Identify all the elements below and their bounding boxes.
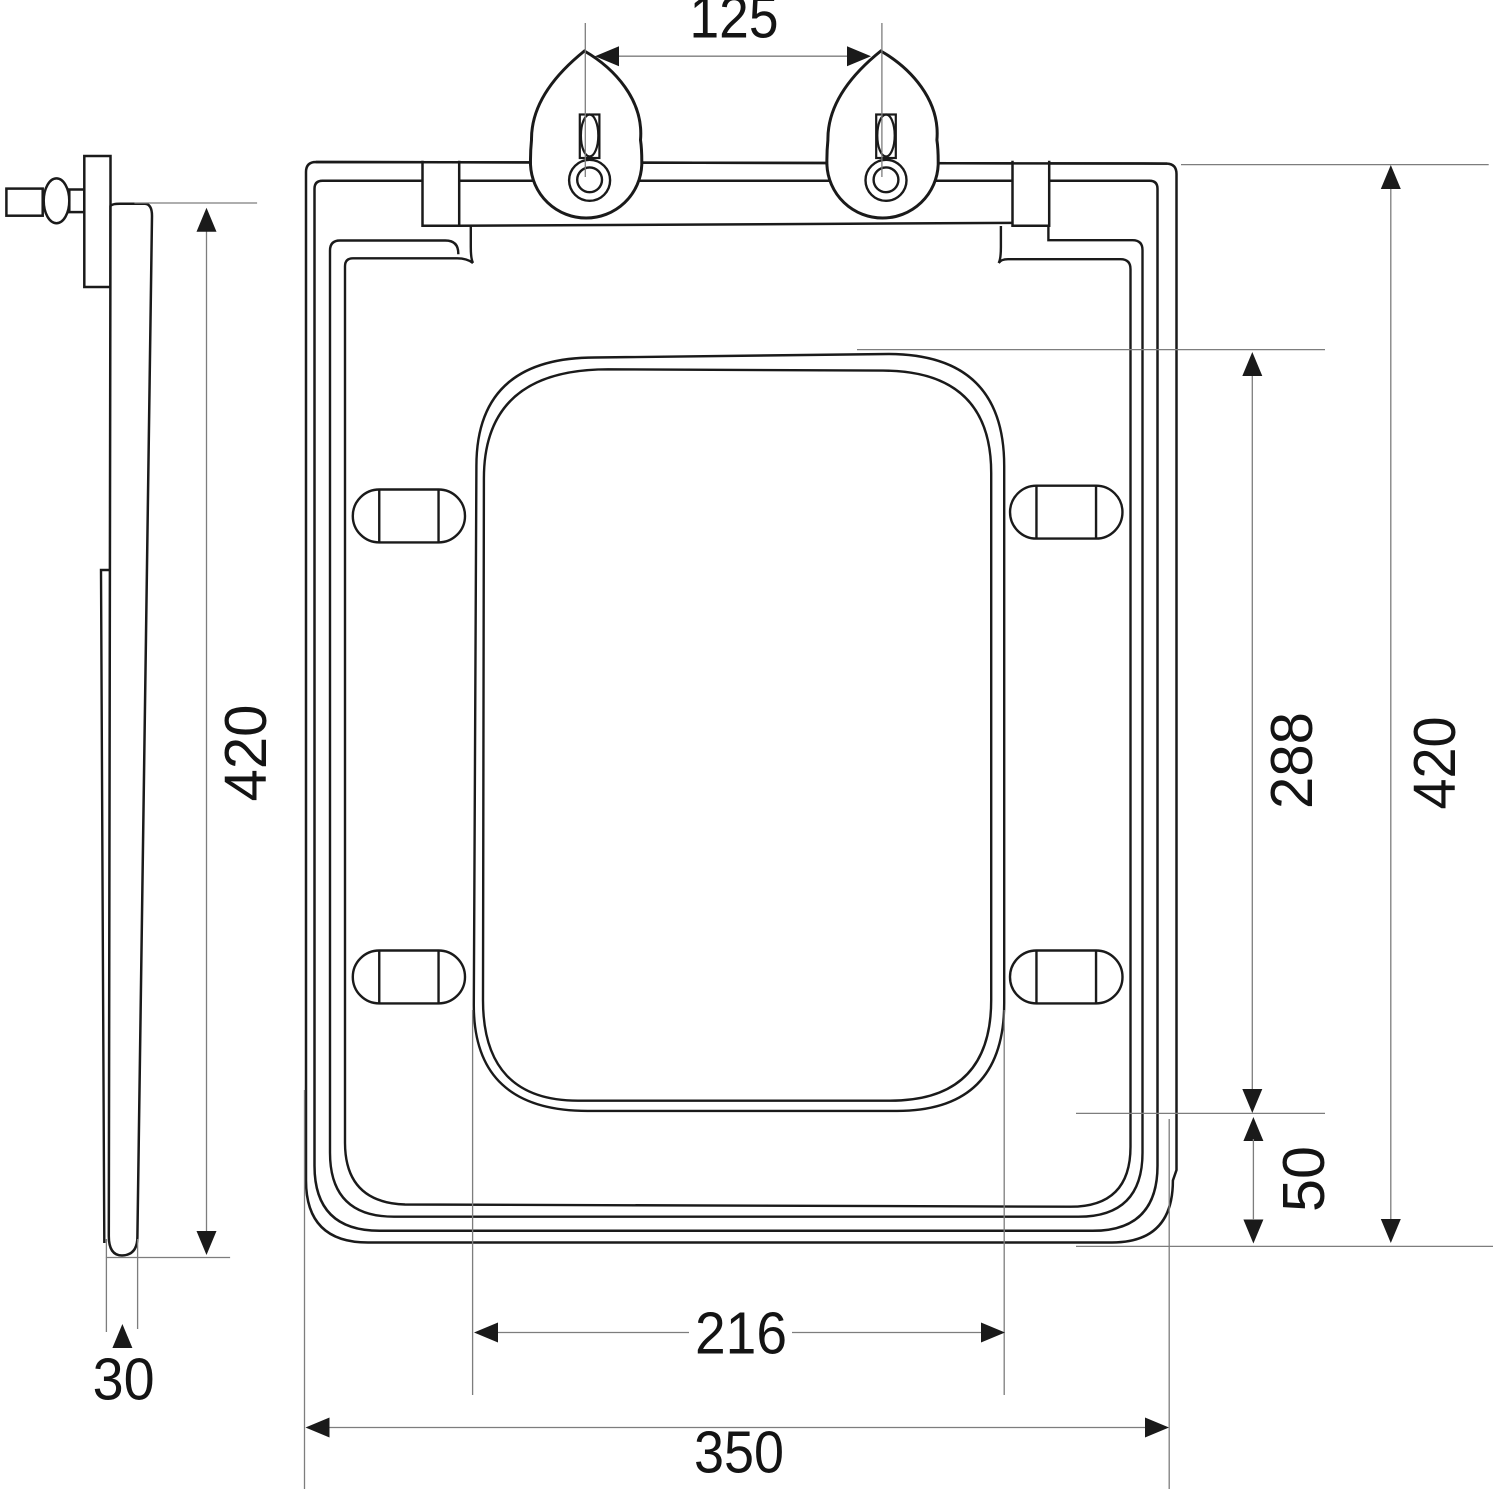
svg-text:350: 350 xyxy=(694,1420,784,1486)
svg-text:125: 125 xyxy=(690,0,779,51)
svg-text:420: 420 xyxy=(1402,717,1468,810)
svg-text:50: 50 xyxy=(1271,1146,1337,1212)
svg-text:216: 216 xyxy=(695,1300,787,1366)
svg-text:420: 420 xyxy=(213,705,279,802)
svg-text:30: 30 xyxy=(93,1347,155,1413)
svg-text:288: 288 xyxy=(1259,712,1325,809)
